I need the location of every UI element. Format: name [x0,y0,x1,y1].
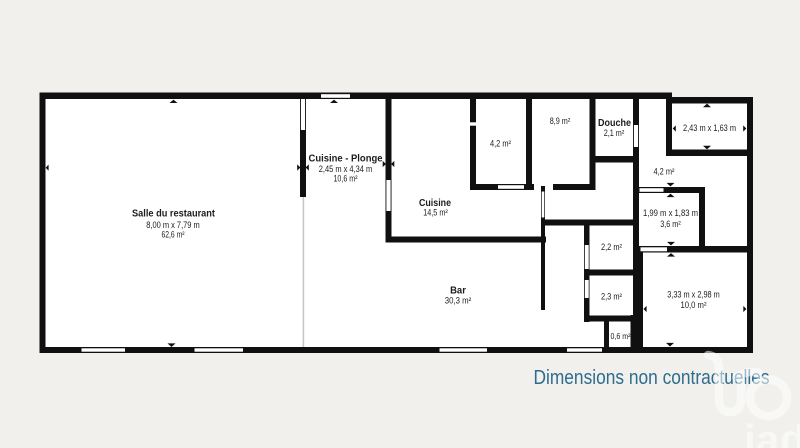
svg-text:14,5 m²: 14,5 m² [423,208,448,218]
svg-text:2,3 m²: 2,3 m² [601,291,622,301]
svg-text:iad: iad [744,416,800,448]
svg-text:10,6 m²: 10,6 m² [334,174,358,184]
svg-text:2,2 m²: 2,2 m² [601,242,622,252]
svg-text:0,6 m²: 0,6 m² [611,332,631,341]
svg-text:30,3 m²: 30,3 m² [445,295,472,305]
svg-text:2,1 m²: 2,1 m² [604,128,625,138]
svg-text:1,99 m x 1,83 m: 1,99 m x 1,83 m [643,208,698,218]
svg-text:2,43 m x 1,63 m: 2,43 m x 1,63 m [683,123,736,133]
svg-text:8,9 m²: 8,9 m² [550,116,571,126]
svg-text:62,6 m²: 62,6 m² [162,230,185,240]
svg-text:8,00 m x 7,79 m: 8,00 m x 7,79 m [146,220,200,230]
svg-text:3,6 m²: 3,6 m² [660,219,681,229]
svg-text:4,2 m²: 4,2 m² [654,167,675,177]
svg-text:10,0 m²: 10,0 m² [681,300,707,310]
svg-text:Cuisine - Plonge: Cuisine - Plonge [309,154,383,165]
svg-text:Salle du restaurant: Salle du restaurant [132,208,216,219]
svg-text:4,2 m²: 4,2 m² [490,138,511,148]
svg-text:3,33 m x 2,98 m: 3,33 m x 2,98 m [667,290,720,300]
